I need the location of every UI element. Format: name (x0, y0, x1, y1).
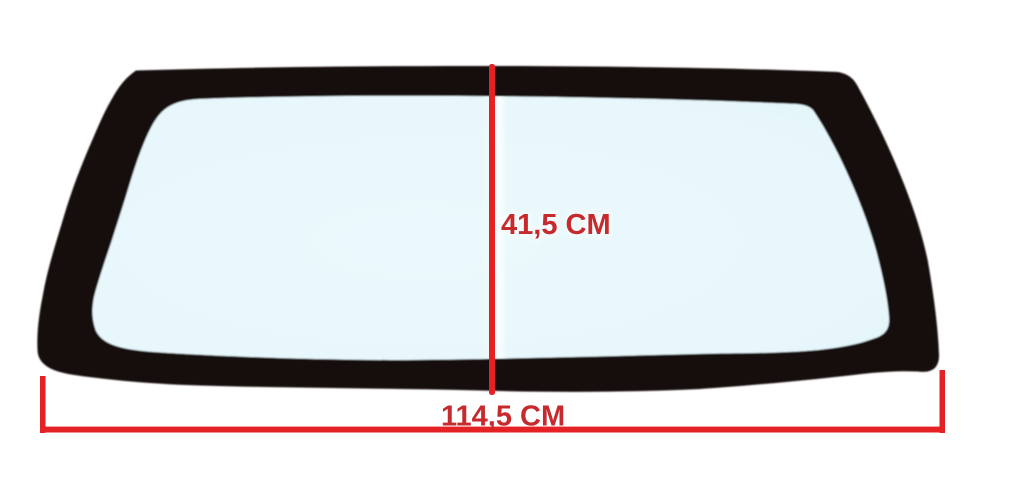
svg-text:114,5 CM: 114,5 CM (441, 401, 565, 433)
svg-text:41,5 CM: 41,5 CM (501, 209, 611, 241)
